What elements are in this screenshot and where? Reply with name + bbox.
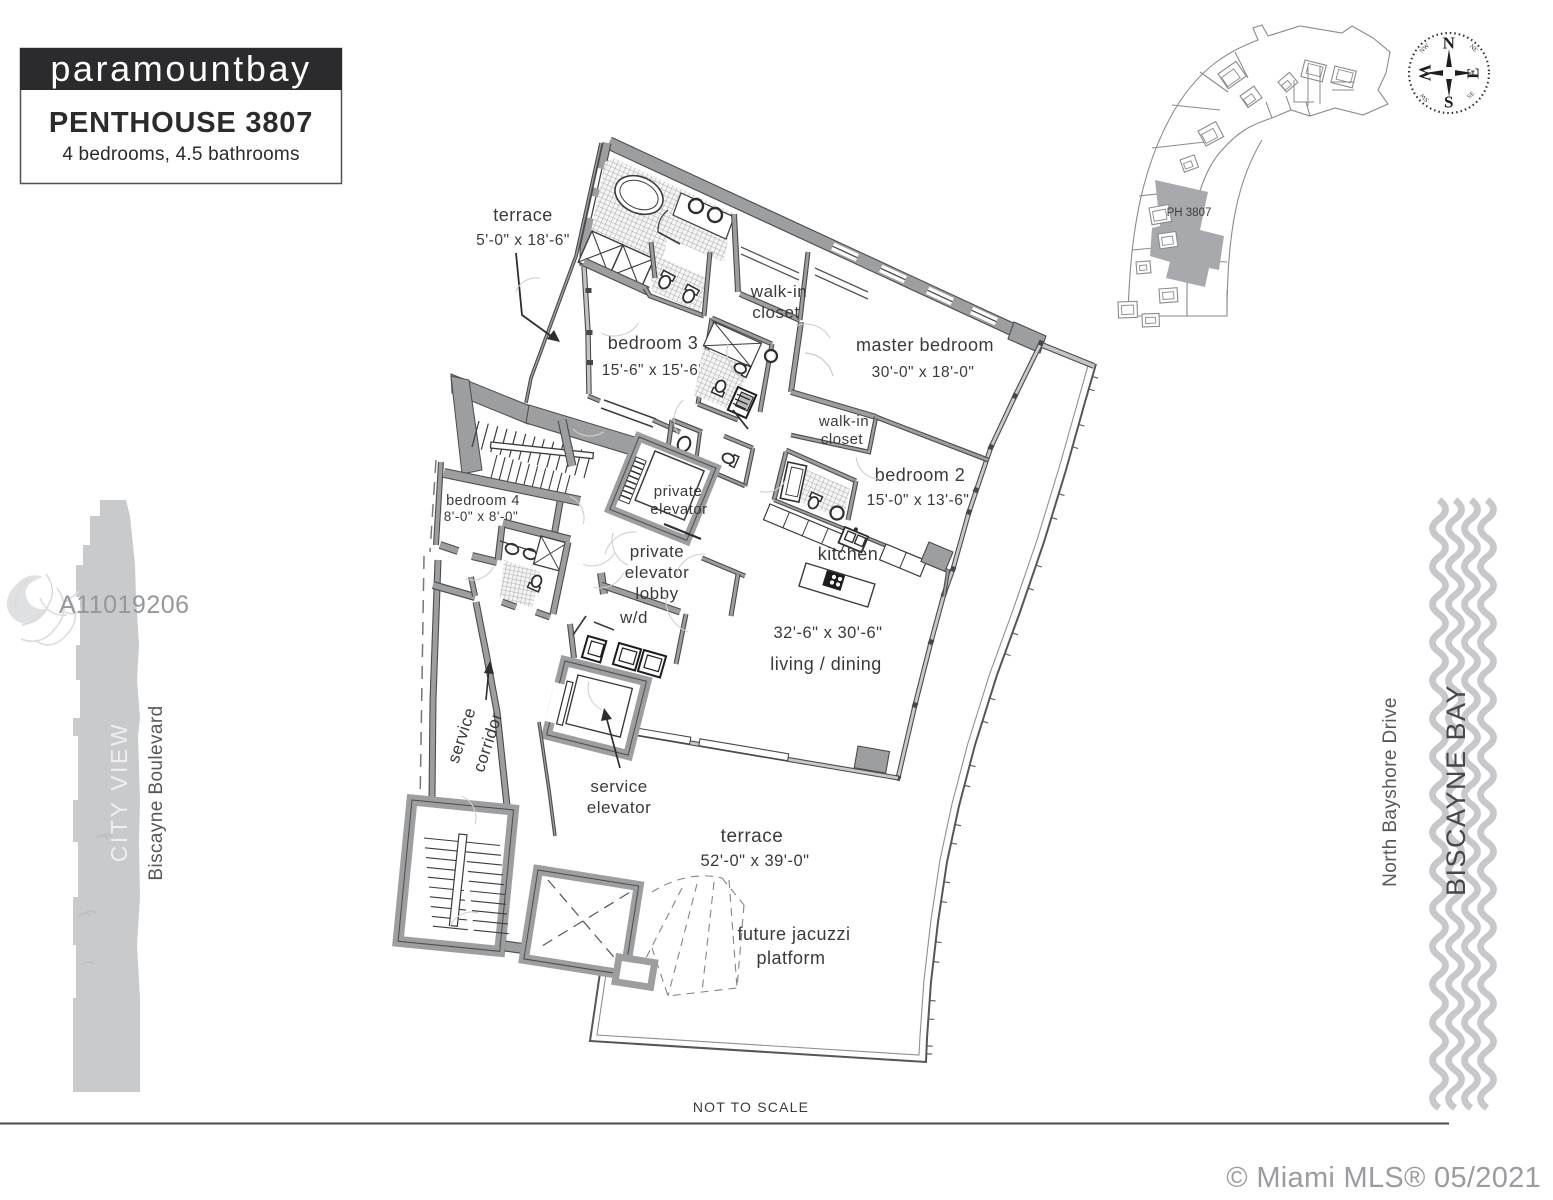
svg-text:BISCAYNE BAY: BISCAYNE BAY [1441,684,1471,896]
svg-text:S: S [1444,93,1454,112]
svg-text:bedroom 2: bedroom 2 [875,465,966,485]
svg-text:E: E [1464,67,1483,79]
svg-text:N: N [1443,34,1456,53]
svg-text:Biscayne Boulevard: Biscayne Boulevard [146,705,167,880]
svg-text:5'-0" x 18'-6": 5'-0" x 18'-6" [476,232,570,249]
svg-text:terrace: terrace [721,826,784,847]
svg-text:bedroom 3: bedroom 3 [608,333,699,353]
svg-text:30'-0" x 18'-0": 30'-0" x 18'-0" [872,364,975,381]
svg-text:elevator: elevator [587,798,651,817]
svg-text:walk-in: walk-in [750,282,807,301]
svg-text:paramountbay: paramountbay [50,48,311,89]
svg-text:living / dining: living / dining [770,654,882,674]
svg-text:closet: closet [821,431,864,448]
svg-text:North Bayshore Drive: North Bayshore Drive [1380,697,1401,887]
svg-text:closet: closet [752,303,799,322]
svg-text:terrace: terrace [493,205,553,225]
svg-text:master bedroom: master bedroom [856,335,994,355]
svg-text:kitchen: kitchen [818,544,879,564]
svg-text:NOT TO SCALE: NOT TO SCALE [693,1099,809,1115]
svg-text:15'-0" x 13'-6": 15'-0" x 13'-6" [867,492,970,509]
svg-text:© Miami MLS® 05/2021: © Miami MLS® 05/2021 [1226,1162,1541,1194]
svg-text:bedroom 4: bedroom 4 [446,493,520,509]
svg-text:32'-6" x 30'-6": 32'-6" x 30'-6" [774,624,883,642]
svg-text:private: private [654,483,703,500]
svg-text:CITY VIEW: CITY VIEW [106,722,132,863]
svg-text:elevator: elevator [650,501,707,518]
svg-text:future jacuzzi: future jacuzzi [737,924,850,944]
svg-text:private: private [630,542,685,561]
svg-text:52'-0" x 39'-0": 52'-0" x 39'-0" [701,852,810,870]
svg-text:platform: platform [756,948,825,968]
svg-text:lobby: lobby [635,584,678,603]
svg-text:4 bedrooms, 4.5 bathrooms: 4 bedrooms, 4.5 bathrooms [62,144,299,165]
svg-text:w/d: w/d [619,608,648,627]
svg-text:walk-in: walk-in [818,413,869,430]
svg-text:service: service [590,777,647,796]
svg-text:W: W [1416,64,1435,82]
svg-text:PENTHOUSE 3807: PENTHOUSE 3807 [49,107,313,139]
svg-text:A11019206: A11019206 [59,591,190,619]
svg-text:15'-6" x 15'-6": 15'-6" x 15'-6" [602,362,705,379]
svg-text:PH 3807: PH 3807 [1167,207,1212,219]
